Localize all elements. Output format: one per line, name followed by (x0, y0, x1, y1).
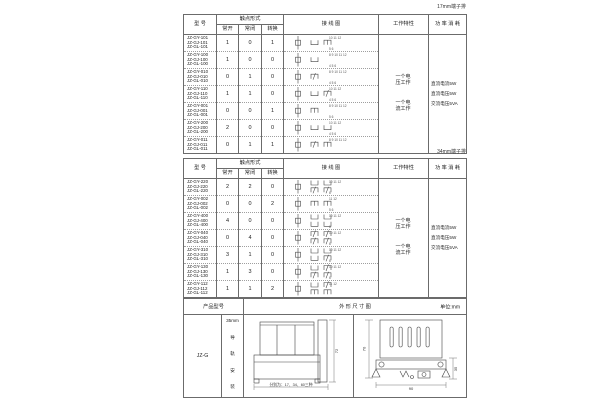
power-consumption-cell: 直流电流5W直流电压5W交流电压5VA (429, 179, 467, 298)
model-number: JZ-GL-220 (187, 189, 216, 194)
contact-count-nc: 2 (239, 179, 262, 196)
model-number: JZ-GL-400 (187, 223, 216, 228)
contact-count-co: 0 (262, 52, 284, 69)
mount-text-char: 轨 (230, 351, 235, 356)
wiring-diagram-svg: 8 9 10 11 124 5 6 (284, 52, 377, 68)
wiring-diagram-cell: 10 11 126 (284, 179, 379, 196)
contact-count-nc: 1 (239, 69, 262, 86)
contact-count-co: 2 (262, 196, 284, 213)
contact-count-nc: 1 (239, 137, 262, 154)
front-view-cell: 72 分别为：17、34、60三种 (244, 315, 354, 398)
contact-count-no: 0 (217, 230, 239, 247)
contact-count-nc: 0 (239, 213, 262, 230)
model-cell: JZ-GY-112JZ-GJ-112JZ-GL-112 (184, 281, 217, 298)
column-header-normally-closed: 常闭 (239, 169, 262, 179)
relay-front-view-drawing: 72 分别为：17、34、60三种 (244, 315, 354, 392)
wiring-diagram-svg: 11 125 6 (284, 196, 377, 212)
svg-text:6: 6 (329, 259, 331, 263)
contact-count-no: 1 (217, 52, 239, 69)
model-cell: JZ-GY-100JZ-GJ-100JZ-GL-100 (184, 52, 217, 69)
wiring-diagram-cell: 10 11 126 (284, 213, 379, 230)
wiring-diagram-cell: 11 125 6 (284, 196, 379, 213)
wiring-diagram-cell: 11 12 (284, 281, 379, 298)
column-header-model: 型 号 (184, 159, 217, 179)
contact-count-no: 0 (217, 137, 239, 154)
power-line: 交流电压5VA (429, 99, 466, 109)
outline-drawing-header: 外 形 尺 寸 图 单位:mm (244, 299, 467, 315)
front-width-note: 分别为：17、34、60三种 (269, 382, 312, 387)
column-header-model: 型 号 (184, 15, 217, 35)
contact-count-no: 1 (217, 281, 239, 298)
contact-count-no: 4 (217, 213, 239, 230)
contact-count-co: 2 (262, 281, 284, 298)
wiring-diagram-svg: 10 11 126 (284, 213, 377, 229)
din-rail-mount-text: 35mm 导轨安装 (222, 315, 243, 392)
terminal-block-label-17mm: 17mm端子排 (350, 3, 466, 10)
wiring-diagram-cell: 8 9 10 11 124 5 6 (284, 52, 379, 69)
contact-count-co: 0 (262, 120, 284, 137)
model-number: JZ-GL-001 (187, 113, 216, 118)
wiring-diagram-svg: 8 9 10 11 124 5 6 (284, 69, 377, 85)
power-consumption-cell: 直流电流5W直流电压5W交流电压5VA (429, 35, 467, 154)
svg-text:4 5 6: 4 5 6 (329, 98, 336, 102)
power-line: 直流电压5W (429, 89, 466, 99)
contact-count-nc: 4 (239, 230, 262, 247)
characteristic-text: 一个电压工作 (396, 75, 412, 87)
column-header-contact-form: 触点形式 (217, 15, 284, 25)
contact-count-nc: 0 (239, 196, 262, 213)
wiring-diagram-cell: 10 11 124 5 6 (284, 86, 379, 103)
wiring-diagram-cell: 8 9 10 11 125 6 (284, 103, 379, 120)
wiring-diagram-svg: 10 11 126 (284, 247, 377, 263)
power-line: 交流电压5VA (429, 243, 466, 253)
unit-label: 单位:mm (440, 303, 460, 310)
column-header-power: 功 率 消 耗 (429, 159, 467, 179)
contact-count-co: 1 (262, 137, 284, 154)
spec-table-34mm: 型 号 触点形式 接 线 图 工作特性 功 率 消 耗 常开 常闭 转换 JZ-… (183, 158, 467, 298)
wiring-diagram-svg: 8 9 10 11 125 6 (284, 103, 377, 119)
svg-text:10 11 12: 10 11 12 (329, 248, 341, 252)
svg-text:10 11 12: 10 11 12 (329, 265, 341, 269)
svg-text:6: 6 (329, 225, 331, 229)
outline-drawing-title: 外 形 尺 寸 图 (339, 304, 371, 310)
model-cell: JZ-GY-040JZ-GJ-040JZ-GL-040 (184, 230, 217, 247)
contact-count-nc: 0 (239, 52, 262, 69)
contact-count-co: 0 (262, 86, 284, 103)
power-line: 直流电压5W (429, 233, 466, 243)
model-number: JZ-GL-130 (187, 274, 216, 279)
column-header-wiring: 接 线 图 (284, 15, 379, 35)
relay-front-body (254, 320, 327, 383)
model-cell: JZ-GY-101JZ-GJ-101JZ-GL-101 (184, 35, 217, 52)
mount-text-char: 导 (230, 335, 235, 340)
svg-text:4 5 6: 4 5 6 (329, 81, 336, 85)
mount-text-char: 安 (230, 368, 235, 373)
model-number: JZ-GL-010 (187, 79, 216, 84)
wiring-diagram-cell: 10 11 126 (284, 264, 379, 281)
model-number: JZ-GL-112 (187, 291, 216, 296)
power-line: 直流电流5W (429, 79, 466, 89)
model-number: JZ-GL-040 (187, 240, 216, 245)
wiring-diagram-svg: 10 11 124 5 6 (284, 120, 377, 136)
contact-count-no: 0 (217, 196, 239, 213)
working-characteristic-cell: 一个电压工作一个电流工作 (379, 35, 429, 154)
contact-count-nc: 0 (239, 120, 262, 137)
model-cell: JZ-GY-200JZ-GJ-200JZ-GL-200 (184, 120, 217, 137)
model-cell: JZ-GY-400JZ-GJ-400JZ-GL-400 (184, 213, 217, 230)
side-view-cell: 70 35 90 (354, 315, 467, 398)
contact-count-nc: 0 (239, 103, 262, 120)
product-model-value: JZ-G (184, 315, 222, 398)
svg-text:6: 6 (329, 191, 331, 195)
table-row: JZ-GY-101JZ-GJ-101JZ-GL-10110110 11 125 … (184, 35, 467, 52)
wiring-diagram-cell: 10 11 125 6 (284, 35, 379, 52)
contact-count-co: 1 (262, 103, 284, 120)
column-header-changeover: 转换 (262, 169, 284, 179)
wiring-diagram-cell: 10 11 126 (284, 230, 379, 247)
column-header-power: 功 率 消 耗 (429, 15, 467, 35)
svg-text:5 6: 5 6 (329, 115, 334, 119)
svg-text:10 11 12: 10 11 12 (329, 36, 341, 40)
svg-text:8 9 10 11 12: 8 9 10 11 12 (329, 53, 347, 57)
wiring-diagram-svg: 10 11 125 6 (284, 35, 377, 51)
model-number: JZ-GL-110 (187, 96, 216, 101)
model-cell: JZ-GY-011JZ-GJ-011JZ-GL-011 (184, 137, 217, 154)
model-number: JZ-GL-100 (187, 62, 216, 67)
column-header-contact-form: 触点形式 (217, 159, 284, 169)
contact-count-nc: 1 (239, 247, 262, 264)
table-row: JZ-GY-220JZ-GJ-220JZ-GL-22022010 11 126一… (184, 179, 467, 196)
svg-text:10 11 12: 10 11 12 (329, 214, 341, 218)
mount-text-char: 装 (230, 384, 235, 389)
characteristic-text: 一个电流工作 (396, 245, 412, 257)
column-header-wiring: 接 线 图 (284, 159, 379, 179)
contact-count-nc: 3 (239, 264, 262, 281)
characteristic-text: 一个电压工作 (396, 219, 412, 231)
svg-text:8 9 10 11 12: 8 9 10 11 12 (329, 104, 347, 108)
contact-count-co: 0 (262, 264, 284, 281)
mount-size: 35mm (226, 318, 239, 323)
contact-count-co: 0 (262, 179, 284, 196)
power-line: 直流电流5W (429, 223, 466, 233)
wiring-diagram-svg: 10 11 126 (284, 264, 377, 280)
column-header-characteristic: 工作特性 (379, 159, 429, 179)
contact-count-nc: 1 (239, 86, 262, 103)
model-cell: JZ-GY-220JZ-GJ-220JZ-GL-220 (184, 179, 217, 196)
characteristic-text: 一个电流工作 (396, 101, 412, 113)
model-cell: JZ-GY-010JZ-GJ-010JZ-GL-010 (184, 69, 217, 86)
svg-text:6: 6 (329, 242, 331, 246)
contact-count-nc: 1 (239, 281, 262, 298)
svg-text:6: 6 (329, 276, 331, 280)
column-header-normally-open: 常开 (217, 25, 239, 35)
model-cell: JZ-GY-130JZ-GJ-130JZ-GL-130 (184, 264, 217, 281)
mounting-type-cell: 35mm 导轨安装 (222, 315, 244, 398)
model-number: JZ-GL-011 (187, 147, 216, 152)
wiring-diagram-svg: 10 11 124 5 6 (284, 86, 377, 102)
contact-count-co: 0 (262, 247, 284, 264)
svg-text:4 5 6: 4 5 6 (329, 132, 336, 136)
wiring-diagram-cell: 8 9 10 11 124 5 6 (284, 69, 379, 86)
model-cell: JZ-GY-002JZ-GJ-002JZ-GL-002 (184, 196, 217, 213)
contact-count-no: 3 (217, 247, 239, 264)
column-header-changeover: 转换 (262, 25, 284, 35)
spec-table-17mm: 型 号 触点形式 接 线 图 工作特性 功 率 消 耗 常开 常闭 转换 JZ-… (183, 14, 467, 154)
column-header-normally-open: 常开 (217, 169, 239, 179)
side-width-dimension: 90 (409, 386, 414, 391)
terminal-block-label-34mm: 34mm端子排 (350, 148, 466, 155)
wiring-diagram-cell: 10 11 124 5 6 (284, 120, 379, 137)
contact-count-co: 0 (262, 230, 284, 247)
relay-side-body (372, 320, 450, 379)
contact-count-no: 1 (217, 86, 239, 103)
svg-text:8 9 10 11 12: 8 9 10 11 12 (329, 70, 347, 74)
wiring-diagram-svg: 11 12 (284, 281, 377, 297)
product-model-header: 产品型号 (184, 299, 244, 315)
svg-text:10 11 12: 10 11 12 (329, 121, 341, 125)
datasheet-page: 17mm端子排 型 号 触点形式 接 线 图 工作特性 功 率 消 耗 常开 常… (0, 0, 600, 400)
wiring-diagram-svg: 10 11 126 (284, 230, 377, 246)
contact-count-no: 2 (217, 179, 239, 196)
working-characteristic-cell: 一个电压工作一个电流工作 (379, 179, 429, 298)
relay-side-view-drawing: 70 35 90 (354, 315, 467, 392)
svg-text:4 5 6: 4 5 6 (329, 64, 336, 68)
side-height-dimension: 70 (362, 346, 367, 351)
contact-count-co: 1 (262, 35, 284, 52)
model-cell: JZ-GY-310JZ-GJ-310JZ-GL-310 (184, 247, 217, 264)
contact-count-nc: 0 (239, 35, 262, 52)
rail-dimension: 35 (453, 366, 458, 371)
svg-text:10 11 12: 10 11 12 (329, 231, 341, 235)
contact-count-no: 0 (217, 103, 239, 120)
model-number: JZ-GL-002 (187, 206, 216, 211)
model-number: JZ-GL-101 (187, 45, 216, 50)
contact-count-co: 0 (262, 69, 284, 86)
model-cell: JZ-GY-001JZ-GJ-001JZ-GL-001 (184, 103, 217, 120)
column-header-characteristic: 工作特性 (379, 15, 429, 35)
model-number: JZ-GL-200 (187, 130, 216, 135)
contact-count-co: 0 (262, 213, 284, 230)
svg-text:10 11 12: 10 11 12 (329, 180, 341, 184)
svg-text:11 12: 11 12 (329, 197, 337, 201)
wiring-diagram-svg: 10 11 126 (284, 179, 377, 195)
front-height-dimension: 72 (334, 348, 339, 353)
svg-text:5 6: 5 6 (329, 208, 334, 212)
svg-text:8 9 10 11 12: 8 9 10 11 12 (329, 138, 347, 142)
model-cell: JZ-GY-110JZ-GJ-110JZ-GL-110 (184, 86, 217, 103)
svg-text:5 6: 5 6 (329, 47, 334, 51)
outline-dimension-table: 产品型号 外 形 尺 寸 图 单位:mm JZ-G 35mm 导轨安装 (183, 298, 467, 398)
column-header-normally-closed: 常闭 (239, 25, 262, 35)
contact-count-no: 1 (217, 35, 239, 52)
svg-text:10 11 12: 10 11 12 (329, 87, 341, 91)
model-number: JZ-GL-310 (187, 257, 216, 262)
contact-count-no: 2 (217, 120, 239, 137)
contact-count-no: 1 (217, 264, 239, 281)
svg-text:11 12: 11 12 (329, 282, 337, 286)
wiring-diagram-cell: 10 11 126 (284, 247, 379, 264)
contact-count-no: 0 (217, 69, 239, 86)
